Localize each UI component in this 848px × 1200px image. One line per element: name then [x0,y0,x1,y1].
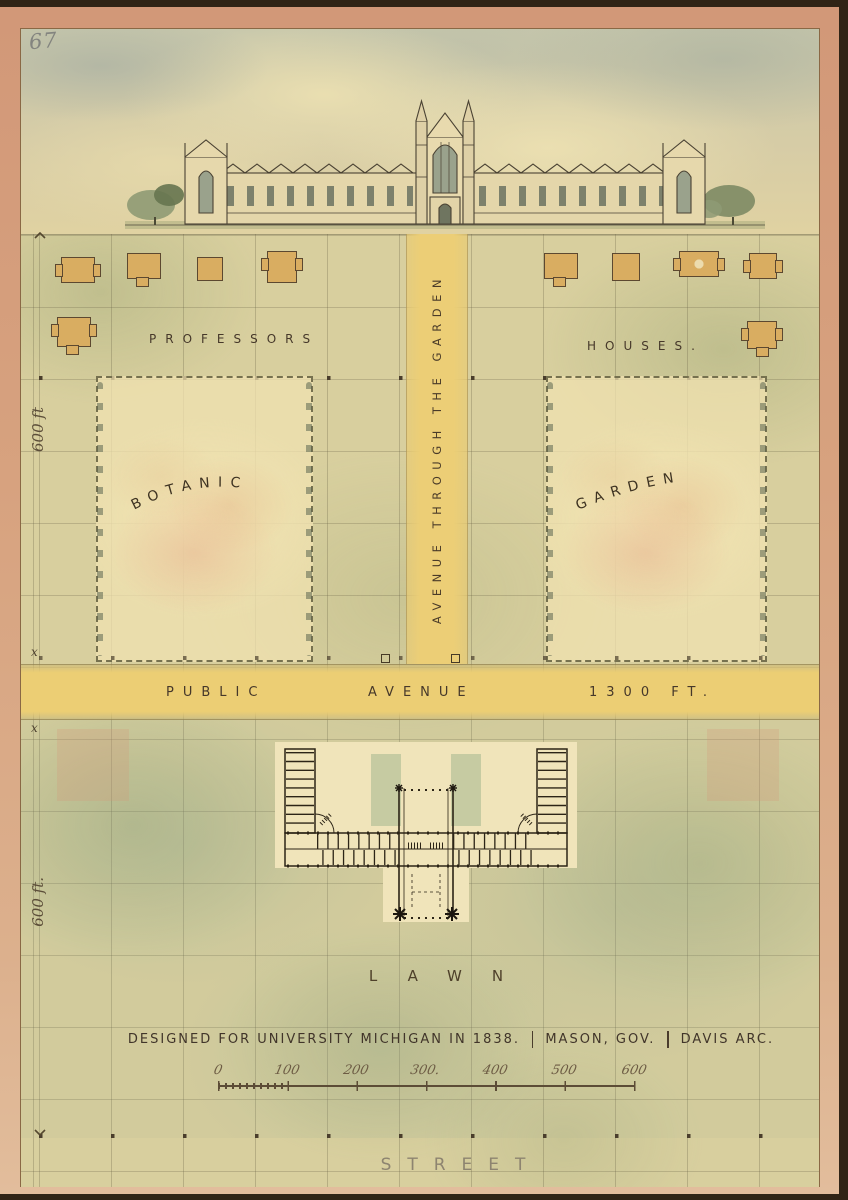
caption-design: DESIGNED FOR UNIVERSITY MICHIGAN IN 1838… [128,1032,520,1047]
professor-house-plan [749,253,777,279]
title-caption: DESIGNED FOR UNIVERSITY MICHIGAN IN 1838… [121,1031,781,1048]
professor-house-plan [61,257,95,283]
scale-bar: 0 100 200 300. 400 500 600 [206,1063,656,1097]
scale-tick-label: 300. [409,1063,441,1078]
scale-bar-hatch [218,1083,288,1089]
scale-tick-label: 400 [481,1063,509,1078]
street-label: STREET [21,1155,848,1175]
avenue-label: AVENUE [368,685,475,700]
professor-house-plan [267,251,297,283]
university-building-floor-plan [271,734,581,926]
lawn-corner-wash [57,729,129,801]
public-avenue: PUBLIC AVENUE 1300 FT. [21,664,819,720]
botanic-garden-plot-right: GARDEN [546,376,767,662]
avenue-width-mark-bottom: x [31,721,38,735]
botanic-label-arc: BOTANIC [98,438,311,528]
scale-tick-label: 500 [550,1063,578,1078]
lawn-label: LAWN [21,967,848,985]
avenue-width-mark-top: x [31,645,38,659]
professor-house-plan [747,321,777,349]
public-label: PUBLIC [166,685,266,700]
drawing-paper: 67 [20,28,820,1187]
svg-text:BOTANIC: BOTANIC [129,475,249,514]
professor-house-plan [57,317,91,347]
caret-down-mark [34,1129,46,1136]
caption-divider [532,1031,533,1048]
scale-tick-label: 200 [342,1063,370,1078]
professor-house-plan [197,257,223,281]
professor-house-plan [679,251,719,277]
garden-avenue: AVENUE THROUGH THE GARDEN [406,234,468,664]
svg-text:GARDEN: GARDEN [574,469,683,514]
garden-label-arc: GARDEN [548,438,765,528]
street-line-dots [39,1134,783,1138]
university-building-elevation-drawing [125,93,765,235]
dimension-600ft-top: 600 ft [29,407,47,452]
caption-divider [667,1031,668,1048]
dimension-600ft-bottom: 600 ft. [29,877,47,927]
page-number: 67 [28,28,59,54]
professor-house-plan [127,253,161,279]
scale-tick-label: 0 [212,1063,223,1078]
houses-label: HOUSES. [587,339,704,353]
tree-icon [127,184,184,225]
building-linework [185,101,705,224]
avenue-length-label: 1300 FT. [589,685,716,700]
professors-label: PROFESSORS [149,332,319,346]
professor-house-plan [544,253,578,279]
scale-tick-label: 600 [620,1063,648,1078]
professor-house-plan [612,253,640,281]
scale-tick-label: 100 [273,1063,301,1078]
botanic-garden-plot-left: BOTANIC [96,376,313,662]
caret-up-mark [34,232,46,239]
lawn-corner-wash [707,729,779,801]
grid-dots-row [39,656,783,660]
caption-governor: MASON, GOV. [545,1032,655,1047]
caption-architect: DAVIS ARC. [681,1032,774,1047]
avenue-through-garden-label: AVENUE THROUGH THE GARDEN [430,273,444,624]
